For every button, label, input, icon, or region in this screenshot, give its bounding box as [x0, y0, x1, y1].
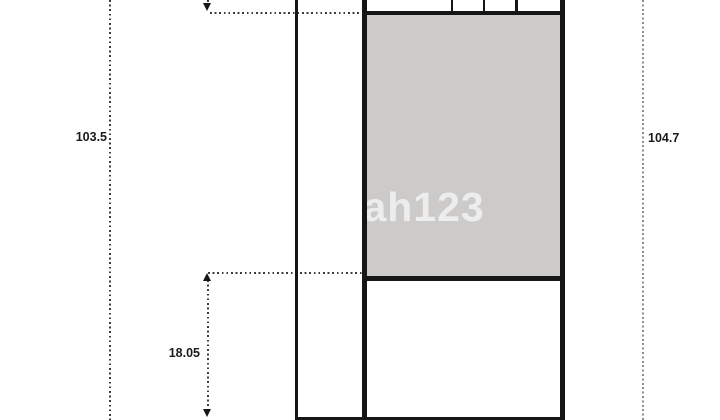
lower-dimension-line	[207, 280, 209, 410]
left-boundary-length-label: 103.5	[38, 130, 107, 144]
top-band-divider-1	[451, 0, 454, 11]
lower-segment-length-label: 18.05	[138, 346, 200, 360]
top-band-divider-3	[515, 0, 518, 11]
building-top-interior-wall	[362, 11, 565, 15]
right-boundary-dotted-line	[642, 0, 644, 420]
right-boundary-length-label: 104.7	[648, 131, 718, 145]
lower-dimension-arrow-up-icon	[203, 273, 211, 281]
building-left-wall	[362, 0, 367, 420]
lower-dimension-arrow-down-icon	[203, 409, 211, 417]
inner-boundary-line	[295, 0, 298, 420]
building-middle-wall	[362, 276, 565, 281]
top-dimension-arrow-down-icon	[203, 3, 211, 11]
top-band-divider-2	[483, 0, 486, 11]
bottom-wall-line	[296, 417, 562, 420]
top-dimension-extension-line	[210, 12, 363, 14]
left-boundary-dotted-line	[109, 0, 111, 420]
lower-dimension-extension-line	[208, 272, 364, 274]
main-room-gray	[367, 15, 561, 276]
building-right-wall	[560, 0, 565, 420]
floor-plan-canvas: 103.5 104.7 18.05 rumah123	[0, 0, 720, 420]
rumah123-watermark: rumah123	[283, 186, 485, 228]
